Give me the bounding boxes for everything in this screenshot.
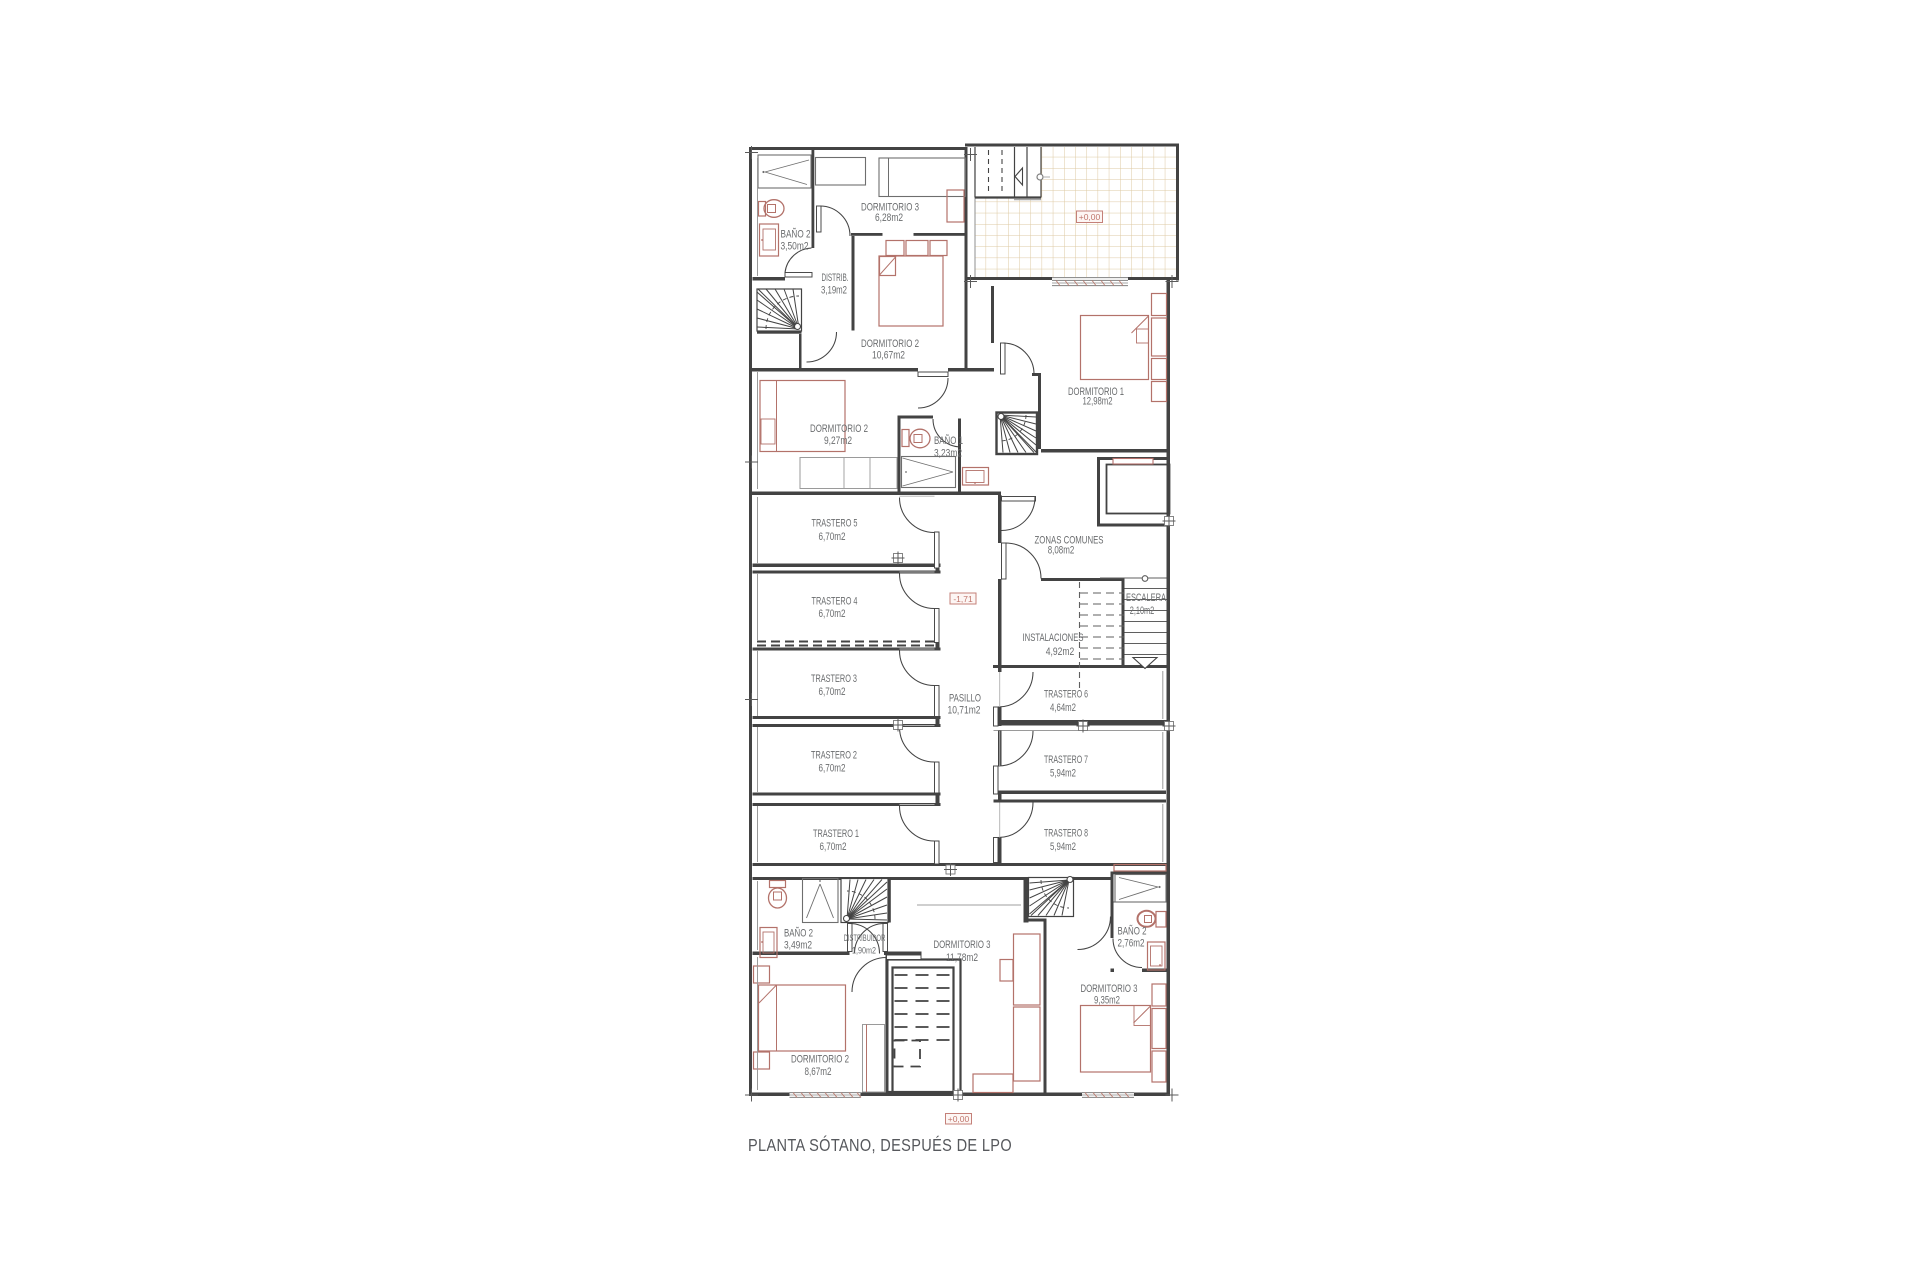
svg-text:2,10m2: 2,10m2 <box>1130 605 1155 617</box>
svg-text:TRASTERO 6: TRASTERO 6 <box>1044 689 1088 701</box>
svg-text:6,70m2: 6,70m2 <box>819 608 846 620</box>
svg-text:PASILLO: PASILLO <box>949 693 981 705</box>
svg-text:TRASTERO 4: TRASTERO 4 <box>812 596 858 608</box>
svg-text:TRASTERO 5: TRASTERO 5 <box>812 518 858 530</box>
svg-text:8,08m2: 8,08m2 <box>1048 545 1075 557</box>
svg-text:TRASTERO 2: TRASTERO 2 <box>811 750 857 762</box>
svg-text:BAÑO 2: BAÑO 2 <box>1118 925 1147 938</box>
svg-text:3,50m2: 3,50m2 <box>781 241 809 253</box>
svg-text:10,67m2: 10,67m2 <box>872 350 905 362</box>
svg-text:6,70m2: 6,70m2 <box>819 531 846 543</box>
svg-text:TRASTERO 3: TRASTERO 3 <box>811 673 857 685</box>
svg-text:9,27m2: 9,27m2 <box>824 435 852 447</box>
svg-text:+0,00: +0,00 <box>1079 212 1101 222</box>
svg-text:DORMITORIO 2: DORMITORIO 2 <box>810 423 868 435</box>
svg-text:TRASTERO 8: TRASTERO 8 <box>1044 828 1088 840</box>
svg-text:6,70m2: 6,70m2 <box>820 841 847 853</box>
svg-text:BAÑO 2: BAÑO 2 <box>784 927 813 940</box>
svg-text:6,70m2: 6,70m2 <box>819 686 846 698</box>
svg-text:-1,71: -1,71 <box>953 594 973 604</box>
svg-text:5,94m2: 5,94m2 <box>1050 768 1076 780</box>
svg-text:DORMITORIO 3: DORMITORIO 3 <box>934 939 991 951</box>
svg-text:DORMITORIO 3: DORMITORIO 3 <box>1081 983 1138 995</box>
svg-text:+0,00: +0,00 <box>948 1114 970 1124</box>
svg-text:PLANTA SÓTANO, DESPUÉS DE LPO: PLANTA SÓTANO, DESPUÉS DE LPO <box>748 1134 1012 1155</box>
svg-text:2,76m2: 2,76m2 <box>1118 938 1145 950</box>
svg-text:6,28m2: 6,28m2 <box>875 212 903 224</box>
svg-text:TRASTERO 1: TRASTERO 1 <box>813 828 859 840</box>
svg-text:DISTRIB.: DISTRIB. <box>822 272 849 284</box>
svg-text:INSTALACIONES: INSTALACIONES <box>1023 632 1084 644</box>
svg-text:11,78m2: 11,78m2 <box>946 952 978 964</box>
svg-text:TRASTERO 7: TRASTERO 7 <box>1044 754 1088 766</box>
svg-text:DORMITORIO 2: DORMITORIO 2 <box>861 338 919 350</box>
svg-text:BAÑO 2: BAÑO 2 <box>781 228 811 241</box>
svg-text:12,98m2: 12,98m2 <box>1083 396 1113 408</box>
svg-text:10,71m2: 10,71m2 <box>948 705 981 717</box>
svg-text:3,49m2: 3,49m2 <box>784 940 812 952</box>
svg-text:ESCALERA: ESCALERA <box>1126 592 1166 604</box>
svg-text:DORMITORIO 2: DORMITORIO 2 <box>791 1054 849 1066</box>
svg-text:6,70m2: 6,70m2 <box>819 763 846 775</box>
svg-text:DISTRIBUIDOR: DISTRIBUIDOR <box>844 933 886 944</box>
svg-text:5,94m2: 5,94m2 <box>1050 841 1076 853</box>
svg-text:1,90m2: 1,90m2 <box>852 946 876 957</box>
svg-text:4,92m2: 4,92m2 <box>1046 646 1075 658</box>
svg-text:4,64m2: 4,64m2 <box>1050 702 1076 714</box>
svg-text:9,35m2: 9,35m2 <box>1094 995 1120 1007</box>
svg-text:8,67m2: 8,67m2 <box>805 1066 832 1078</box>
svg-text:3,23m2: 3,23m2 <box>934 448 962 460</box>
svg-text:BAÑO 1: BAÑO 1 <box>934 434 963 447</box>
svg-text:3,19m2: 3,19m2 <box>821 285 847 297</box>
